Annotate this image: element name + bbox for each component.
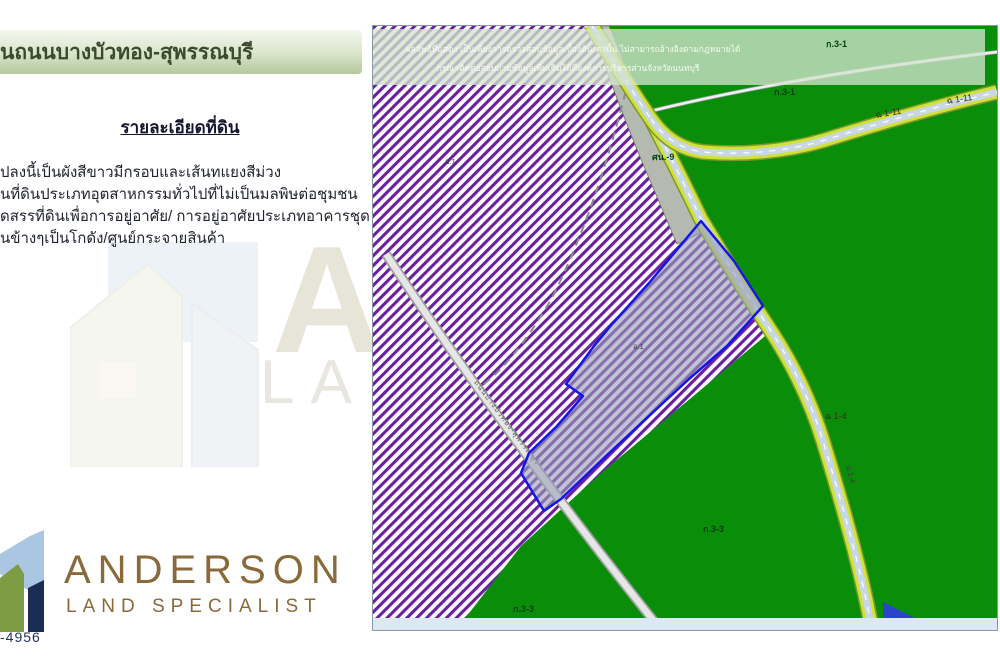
disclaimer-line-1: ผลลัพธ์ที่แสดง เป็นเพียงการตรวจสอบข้อมูล…	[406, 43, 741, 55]
company-name: ANDERSON	[64, 548, 347, 593]
zoning-map-svg: ถนนบางบัวทอง-สุพรรณบุรี	[373, 26, 997, 630]
detail-line: ดสรรที่ดินเพื่อการอยู่อาศัย/ การอยู่อาศั…	[0, 206, 372, 228]
bottom-water-strip	[373, 618, 997, 630]
detail-line: ปลงนี้เป็นผังสีขาวมีกรอบและเส้นทแยงสีม่ว…	[0, 162, 372, 184]
details-heading: รายละเอียดที่ดิน	[0, 114, 360, 141]
road-label-ch14: ฉ 1-4	[825, 411, 847, 421]
zone-label-k31-b: ก.3-1	[774, 87, 795, 97]
zone-label-o1-a: อ.1	[445, 157, 456, 166]
disclaimer-banner	[373, 29, 985, 85]
listing-title: นถนนบางบัวทอง-สุพรรณบุรี	[0, 36, 253, 69]
zone-label-k33-b: ก.3-3	[513, 604, 534, 614]
disclaimer-line-2: กรุณาติดต่อสอบถามข้อมูลเพิ่มเติมได้ที่อง…	[437, 62, 700, 74]
zoning-map: ถนนบางบัวทอง-สุพรรณบุรี	[372, 25, 998, 631]
page: A LAN นถนนบางบัวทอง-สุพรรณบุรี รายละเอีย…	[0, 0, 1000, 656]
zone-label-sn9: ศน.-9	[652, 152, 674, 162]
zone-label-k33-a: ก.3-3	[703, 524, 724, 534]
company-logo-icon	[0, 528, 46, 637]
detail-line: นที่ดินประเภทอุตสาหกรรมทั่วไปที่ไม่เป็นม…	[0, 184, 372, 206]
title-bar: นถนนบางบัวทอง-สุพรรณบุรี	[0, 30, 362, 74]
detail-line: นข้างๆเป็นโกดัง/ศูนย์กระจายสินค้า	[0, 228, 372, 250]
zone-label-o1-b: อ.1	[633, 342, 644, 351]
phone-fragment: -4956	[0, 629, 41, 645]
watermark-house-icon	[70, 242, 265, 472]
left-panel: A LAN นถนนบางบัวทอง-สุพรรณบุรี รายละเอีย…	[0, 0, 372, 656]
zone-label-k31-a: ก.3-1	[826, 39, 847, 49]
company-tagline: LAND SPECIALIST	[66, 596, 322, 618]
details-list: ปลงนี้เป็นผังสีขาวมีกรอบและเส้นทแยงสีม่ว…	[0, 162, 372, 250]
